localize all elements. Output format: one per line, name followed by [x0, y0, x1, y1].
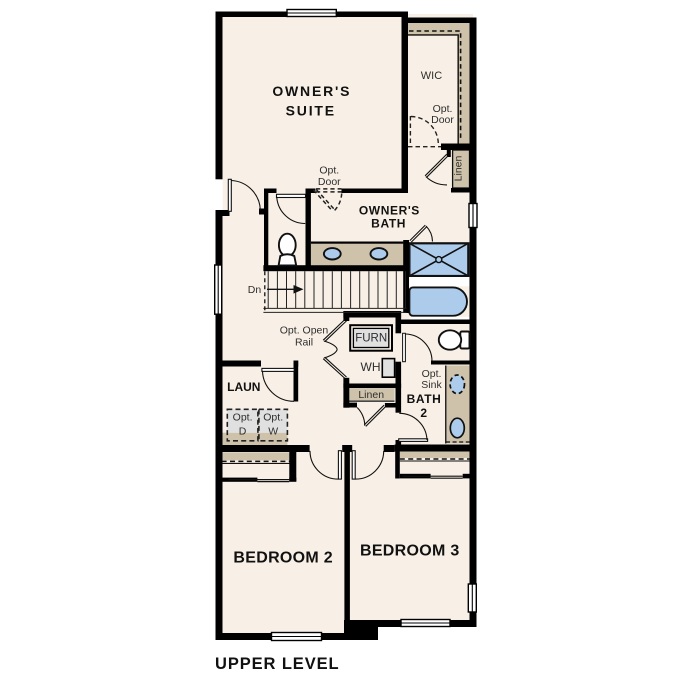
svg-text:SUITE: SUITE — [286, 102, 336, 118]
svg-text:WIC: WIC — [421, 70, 442, 82]
svg-text:OWNER'S: OWNER'S — [272, 83, 351, 99]
svg-text:D: D — [239, 426, 247, 438]
svg-text:BATH: BATH — [407, 392, 442, 406]
svg-text:Opt.: Opt. — [233, 412, 253, 424]
svg-text:BEDROOM 3: BEDROOM 3 — [360, 543, 460, 560]
svg-text:2: 2 — [420, 406, 427, 420]
svg-text:Door: Door — [318, 176, 341, 188]
svg-text:Rail: Rail — [295, 337, 313, 349]
svg-text:LAUN: LAUN — [227, 380, 260, 394]
svg-text:Opt.: Opt. — [263, 412, 283, 424]
svg-text:FURN: FURN — [355, 333, 387, 345]
svg-text:Opt. Open: Opt. Open — [280, 325, 329, 337]
svg-text:W: W — [268, 426, 278, 438]
svg-text:Dn: Dn — [248, 284, 262, 296]
svg-text:Sink: Sink — [421, 379, 442, 391]
svg-text:OWNER'S: OWNER'S — [359, 203, 420, 217]
svg-text:BEDROOM 2: BEDROOM 2 — [233, 549, 333, 566]
svg-text:Linen: Linen — [453, 156, 465, 182]
svg-text:Opt.: Opt. — [319, 165, 339, 177]
svg-text:Linen: Linen — [358, 389, 384, 401]
svg-text:UPPER LEVEL: UPPER LEVEL — [215, 655, 340, 673]
svg-text:Door: Door — [431, 114, 454, 126]
svg-text:WH: WH — [361, 360, 381, 374]
svg-text:BATH: BATH — [371, 217, 406, 231]
